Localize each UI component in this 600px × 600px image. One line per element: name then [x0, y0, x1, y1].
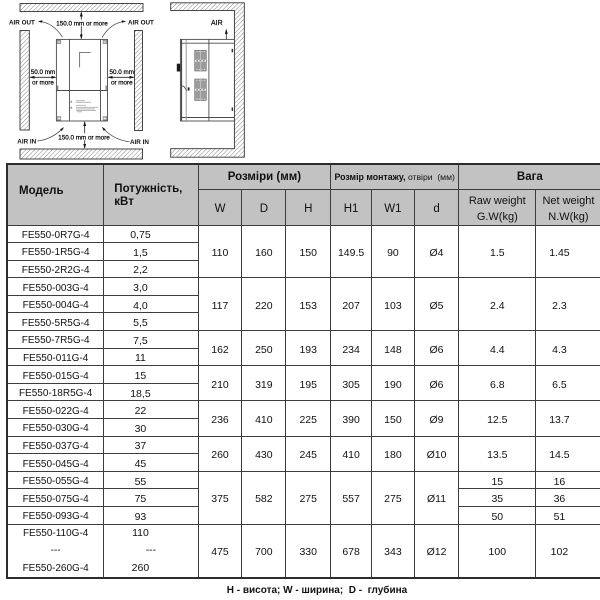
svg-text:AIR IN: AIR IN — [130, 139, 149, 146]
svg-text:AIR OUT: AIR OUT — [128, 20, 154, 27]
svg-text:or more: or more — [32, 79, 54, 86]
svg-text:AIR IN: AIR IN — [17, 138, 36, 145]
svg-text:150.0 mm or more: 150.0 mm or more — [56, 21, 108, 28]
svg-text:50.0 mm: 50.0 mm — [31, 69, 56, 76]
svg-text:AIR OUT: AIR OUT — [9, 20, 35, 27]
svg-text:150.0 mm or more: 150.0 mm or more — [58, 134, 110, 141]
svg-text:50.0 mm: 50.0 mm — [110, 69, 135, 76]
svg-text:AIR: AIR — [211, 20, 223, 27]
svg-text:or more: or more — [111, 79, 133, 86]
